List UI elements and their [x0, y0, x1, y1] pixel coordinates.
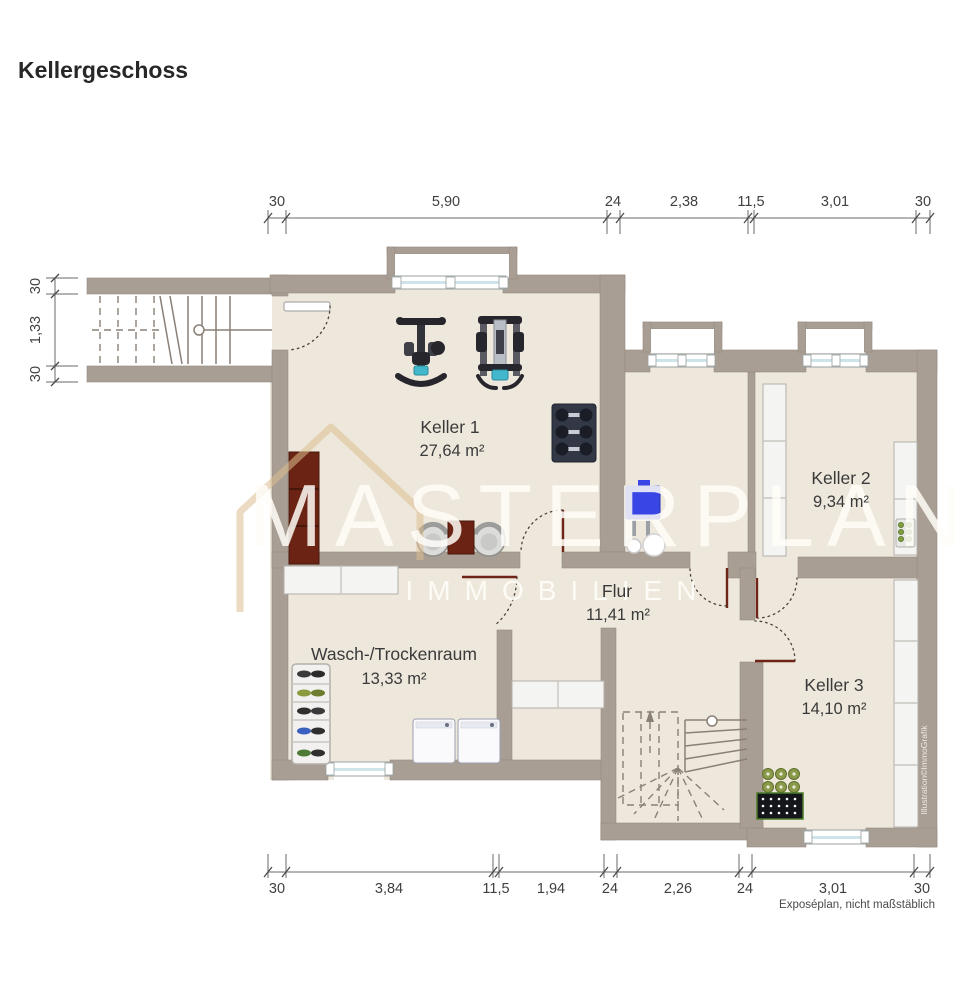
window-keller3-bottom [804, 830, 869, 853]
window-keller1-top [392, 276, 508, 289]
room-area-keller2: 9,34 m² [813, 493, 869, 511]
shelf-keller3-right [894, 580, 918, 827]
watermark-line2: IMMOBILIEN [406, 575, 711, 606]
floorplan-page: Kellergeschoss [0, 0, 977, 1000]
dimension-chain-bottom: 30 3,84 11,5 1,94 24 2,26 24 3,01 30 [264, 854, 934, 897]
dim-top-2: 24 [605, 194, 621, 210]
washer-icon [413, 719, 455, 763]
room-area-flur: 11,41 m² [586, 606, 650, 624]
dim-ticks-bottom [264, 854, 934, 878]
room-area-keller1: 27,64 m² [419, 442, 485, 460]
illustration-credit: Illustration©ImmoGrafik [919, 725, 929, 815]
dryer-icon [458, 719, 500, 763]
dim-top-3: 2,38 [670, 194, 698, 210]
dim-top-4: 11,5 [737, 194, 764, 210]
dim-ticks-left [46, 274, 78, 386]
handrail-post-icon [194, 325, 204, 335]
dim-top-5: 3,01 [821, 194, 849, 210]
dim-bottom-6: 24 [737, 881, 753, 897]
dim-bottom-2: 11,5 [482, 881, 509, 897]
dim-left-0: 30 [28, 278, 44, 294]
room-label-flur: Flur [602, 581, 632, 601]
dim-bottom-1: 3,84 [375, 881, 403, 897]
dim-left-2: 30 [28, 366, 44, 382]
page-title: Kellergeschoss [18, 57, 188, 83]
footer-note: Exposéplan, nicht maßstäblich [779, 899, 935, 911]
dim-ticks-top [264, 210, 934, 234]
dim-left-1: 1,33 [28, 316, 44, 344]
room-area-wasch: 13,33 m² [361, 670, 427, 688]
dim-bottom-3: 1,94 [537, 881, 565, 897]
room-area-keller3: 14,10 m² [801, 700, 867, 718]
room-label-keller1: Keller 1 [420, 417, 479, 437]
dim-bottom-8: 30 [914, 881, 930, 897]
dim-top-0: 30 [269, 194, 285, 210]
floorplan-canvas: Kellergeschoss [0, 0, 977, 1000]
beverage-crate-icon [757, 793, 803, 819]
shoe-rack-icon [292, 664, 330, 764]
dim-bottom-4: 24 [602, 881, 618, 897]
dim-bottom-0: 30 [269, 881, 285, 897]
room-label-keller3: Keller 3 [804, 675, 863, 695]
shelf-flur [512, 681, 604, 708]
window-wasch-bottom [326, 762, 393, 785]
window-middle-top [648, 354, 715, 367]
dumbbell-rack-icon [552, 404, 596, 462]
dimension-chain-top: 30 5,90 24 2,38 11,5 3,01 30 [264, 194, 934, 234]
dim-bottom-7: 3,01 [819, 881, 847, 897]
shelf-wasch-top [284, 566, 398, 594]
dim-top-6: 30 [915, 194, 931, 210]
window-keller2-top [803, 354, 868, 367]
handrail-post-icon [707, 716, 717, 726]
dimension-chain-left: 30 1,33 30 [28, 274, 78, 386]
dim-bottom-5: 2,26 [664, 881, 692, 897]
dim-top-1: 5,90 [432, 194, 460, 210]
room-label-keller2: Keller 2 [811, 468, 870, 488]
room-label-wasch: Wasch-/Trockenraum [311, 644, 477, 664]
